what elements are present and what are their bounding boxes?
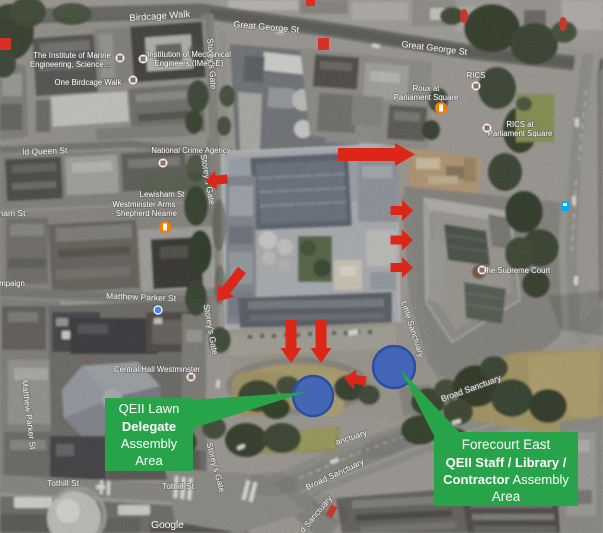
svg-text:Central Hall Westminster: Central Hall Westminster [114, 365, 200, 374]
svg-text:Parliament Square: Parliament Square [394, 93, 459, 102]
svg-text:One Birdcage Walk: One Birdcage Walk [55, 78, 122, 87]
svg-text:QEII Staff / Library /: QEII Staff / Library / [446, 455, 567, 470]
svg-text:Delegate: Delegate [122, 419, 176, 434]
svg-text:Tothill St: Tothill St [162, 481, 195, 491]
svg-text:Parliament Square: Parliament Square [488, 129, 553, 138]
svg-text:Forecourt East: Forecourt East [462, 437, 551, 452]
svg-text:Assembly: Assembly [121, 436, 178, 451]
svg-text:RICS at: RICS at [506, 120, 534, 129]
svg-text:Lewisham St: Lewisham St [140, 190, 185, 199]
svg-text:ld Queen St: ld Queen St [22, 145, 68, 157]
svg-text:Contractor Assembly: Contractor Assembly [443, 472, 569, 487]
svg-text:Area: Area [492, 489, 521, 504]
svg-text:Google: Google [151, 519, 184, 531]
svg-text:ham St: ham St [0, 208, 26, 218]
svg-text:RICS: RICS [467, 71, 486, 80]
svg-text:National Crime Agency: National Crime Agency [151, 146, 230, 155]
svg-text:Roux at: Roux at [413, 84, 441, 93]
svg-text:Institution of Mechanical: Institution of Mechanical [147, 50, 231, 59]
svg-text:Engineering, Science...: Engineering, Science... [30, 60, 110, 69]
svg-text:Area: Area [135, 453, 163, 468]
svg-text:- Shepherd Neame: - Shepherd Neame [111, 209, 177, 218]
svg-text:Westminster Arms: Westminster Arms [112, 200, 175, 209]
svg-text:mpaign: mpaign [0, 279, 25, 288]
svg-text:Tothill St: Tothill St [47, 478, 80, 488]
svg-text:The Supreme Court: The Supreme Court [482, 266, 551, 275]
svg-text:The Institute of Marine: The Institute of Marine [33, 51, 111, 60]
svg-text:QEII Lawn: QEII Lawn [119, 401, 180, 416]
